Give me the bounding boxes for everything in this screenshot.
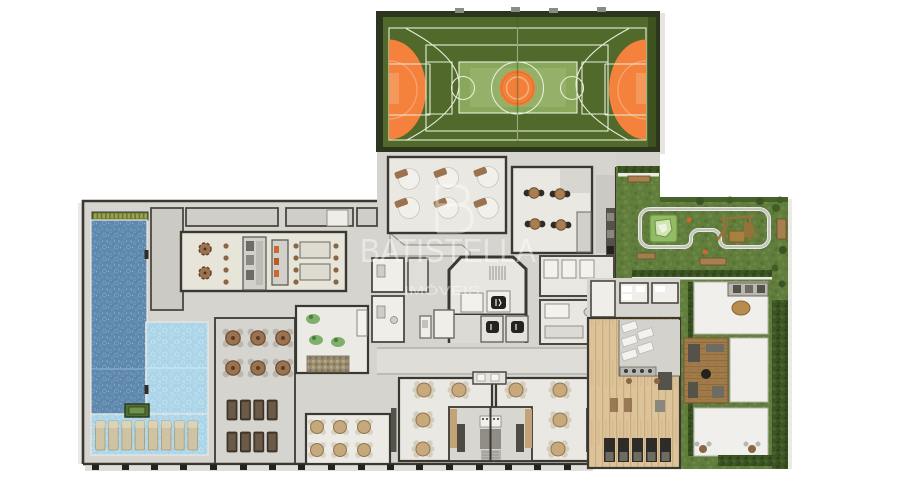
- svg-text:BATISTELLA: BATISTELLA: [360, 232, 536, 269]
- svg-text:IMÓVEIS: IMÓVEIS: [404, 283, 480, 298]
